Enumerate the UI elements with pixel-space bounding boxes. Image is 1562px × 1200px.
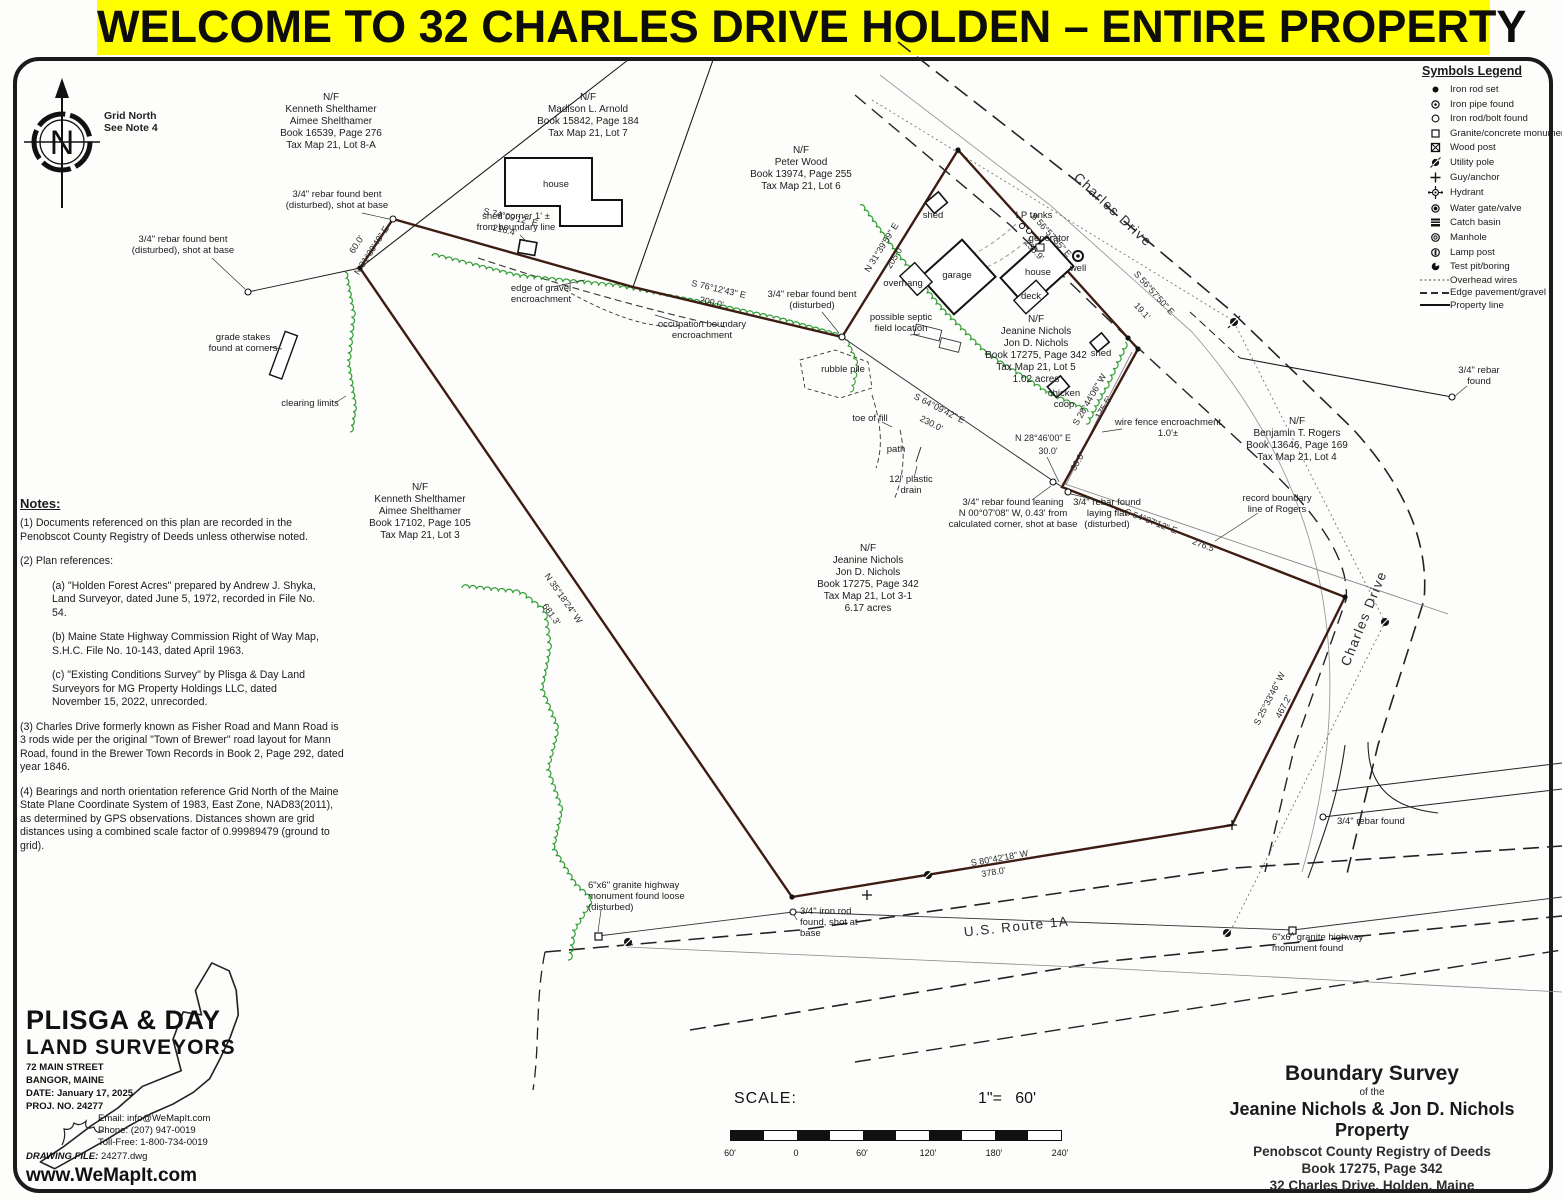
svg-text:S 76°12'43" E: S 76°12'43" E <box>690 278 746 300</box>
svg-text:Book 15842, Page 184: Book 15842, Page 184 <box>537 116 639 127</box>
svg-text:3/4" rebar found bent: 3/4" rebar found bent <box>768 289 857 300</box>
svg-text:base: base <box>800 928 821 939</box>
svg-text:monument found: monument found <box>1272 943 1343 954</box>
division-line-lot7 <box>633 60 713 287</box>
svg-text:Aimee Shelthamer: Aimee Shelthamer <box>290 116 373 127</box>
svg-text:drain: drain <box>900 485 921 496</box>
svg-text:Book 17275, Page 342: Book 17275, Page 342 <box>817 579 919 590</box>
svg-text:field location: field location <box>875 323 928 334</box>
svg-text:60.0': 60.0' <box>347 233 366 255</box>
svg-text:19.1': 19.1' <box>1132 300 1152 321</box>
survey-map: N/FKenneth ShelthamerAimee ShelthamerBoo… <box>0 0 1562 1200</box>
svg-text:12" plastic: 12" plastic <box>889 474 933 485</box>
svg-text:Kenneth Shelthamer: Kenneth Shelthamer <box>285 104 377 115</box>
svg-text:(disturbed): (disturbed) <box>588 902 633 913</box>
svg-text:3/4" rebar: 3/4" rebar <box>1458 365 1499 376</box>
svg-text:N 00°07'08" W, 0.43' from: N 00°07'08" W, 0.43' from <box>959 508 1068 519</box>
svg-text:3/4" rebar found bent: 3/4" rebar found bent <box>293 189 382 200</box>
route1a-record-line <box>627 947 1562 992</box>
charles-drive-east-edge <box>898 42 1425 878</box>
svg-text:(disturbed), shot at base: (disturbed), shot at base <box>132 245 234 256</box>
svg-text:30.0': 30.0' <box>1068 450 1086 472</box>
charles-drive-label: Charles Drive <box>1338 569 1390 669</box>
svg-text:Tax Map 21, Lot 3: Tax Map 21, Lot 3 <box>380 530 460 541</box>
svg-text:rubble pile: rubble pile <box>821 364 865 375</box>
svg-text:house: house <box>1025 267 1051 278</box>
svg-text:found, shot at: found, shot at <box>800 917 858 928</box>
svg-text:Kenneth Shelthamer: Kenneth Shelthamer <box>374 494 466 505</box>
svg-text:3/4" rebar found: 3/4" rebar found <box>1337 816 1405 827</box>
svg-text:Book 16539, Page 276: Book 16539, Page 276 <box>280 128 382 139</box>
svg-text:found: found <box>1467 376 1491 387</box>
svg-text:occupation boundary: occupation boundary <box>658 319 746 330</box>
svg-text:230.0': 230.0' <box>918 413 944 433</box>
svg-text:Book 13646, Page 169: Book 13646, Page 169 <box>1246 440 1348 451</box>
svg-text:Tax Map 21, Lot 8-A: Tax Map 21, Lot 8-A <box>286 140 376 151</box>
svg-text:Madison L. Arnold: Madison L. Arnold <box>548 104 628 115</box>
svg-text:N/F: N/F <box>323 92 339 103</box>
svg-text:house: house <box>543 179 569 190</box>
property-boundary <box>360 150 1345 897</box>
well-symbol-center <box>1076 254 1080 258</box>
corner-markers <box>245 147 1455 940</box>
svg-text:record boundary: record boundary <box>1242 493 1311 504</box>
svg-text:276.5': 276.5' <box>1191 536 1217 554</box>
svg-text:found at corners: found at corners <box>209 343 278 354</box>
svg-text:encroachment: encroachment <box>672 330 733 341</box>
svg-text:grade stakes: grade stakes <box>216 332 271 343</box>
route1a-far-edge <box>855 950 1562 1062</box>
svg-text:Tax Map 21, Lot 7: Tax Map 21, Lot 7 <box>548 128 628 139</box>
svg-text:6"x6" granite highway: 6"x6" granite highway <box>588 880 679 891</box>
svg-text:378.0': 378.0' <box>981 865 1007 879</box>
svg-text:N/F: N/F <box>412 482 428 493</box>
toe-of-fill-line <box>872 395 880 468</box>
svg-text:3/4" iron rod: 3/4" iron rod <box>800 906 851 917</box>
intersection-flare <box>1368 742 1438 813</box>
svg-text:encroachment: encroachment <box>511 294 572 305</box>
charles-drive-label: Charles Drive <box>1071 170 1155 250</box>
svg-text:Tax Map 21, Lot 3-1: Tax Map 21, Lot 3-1 <box>824 591 913 602</box>
svg-text:path: path <box>887 444 906 455</box>
svg-text:Book 17275, Page 342: Book 17275, Page 342 <box>985 350 1087 361</box>
svg-text:3/4" rebar found: 3/4" rebar found <box>1073 497 1141 508</box>
svg-text:line of Rogers: line of Rogers <box>1248 504 1307 515</box>
clearing-limits-line <box>345 272 356 432</box>
svg-text:well: well <box>1069 263 1086 274</box>
survey-sheet-page: WELCOME TO 32 CHARLES DRIVE HOLDEN – ENT… <box>0 0 1562 1200</box>
svg-text:1.02 acres: 1.02 acres <box>1013 374 1060 385</box>
svg-text:Book 13974, Page 255: Book 13974, Page 255 <box>750 169 852 180</box>
svg-text:(disturbed), shot at base: (disturbed), shot at base <box>286 200 388 211</box>
plastic-drain-line <box>916 447 921 462</box>
svg-text:6"x6" granite highway: 6"x6" granite highway <box>1272 932 1363 943</box>
boundary-shed <box>518 240 537 256</box>
svg-text:30.0': 30.0' <box>1038 446 1058 456</box>
svg-text:overhang: overhang <box>883 278 923 289</box>
svg-text:toe of fill: toe of fill <box>852 413 887 424</box>
svg-text:edge of gravel: edge of gravel <box>511 283 571 294</box>
svg-text:N 28°46'00" E: N 28°46'00" E <box>1015 433 1071 443</box>
svg-text:coop: coop <box>1054 399 1075 410</box>
svg-text:laying flat: laying flat <box>1087 508 1127 519</box>
route1a-label: U.S. Route 1A <box>963 914 1070 940</box>
side-line-1 <box>1323 789 1562 817</box>
svg-text:200.0': 200.0' <box>699 294 725 309</box>
svg-text:Tax Map 21, Lot 4: Tax Map 21, Lot 4 <box>1257 452 1337 463</box>
svg-text:S 64°07'12" E: S 64°07'12" E <box>1123 507 1178 536</box>
svg-text:garage: garage <box>942 270 972 281</box>
svg-text:shed: shed <box>923 210 944 221</box>
svg-text:Tax Map 21, Lot 6: Tax Map 21, Lot 6 <box>761 181 841 192</box>
svg-text:Tax Map 21, Lot 5: Tax Map 21, Lot 5 <box>996 362 1076 373</box>
rogers-east-line <box>1240 358 1452 397</box>
svg-text:Jon D. Nichols: Jon D. Nichols <box>1004 338 1068 349</box>
svg-text:3/4" rebar found bent: 3/4" rebar found bent <box>139 234 228 245</box>
svg-text:N/F: N/F <box>1028 314 1044 325</box>
route1a-north-edge <box>545 846 1562 952</box>
svg-text:N/F: N/F <box>580 92 596 103</box>
svg-text:N/F: N/F <box>1289 416 1305 427</box>
svg-text:N/F: N/F <box>860 543 876 554</box>
svg-text:clearing limits: clearing limits <box>281 398 339 409</box>
svg-text:1.0'±: 1.0'± <box>1158 428 1178 439</box>
svg-text:205.0': 205.0' <box>884 244 905 270</box>
svg-text:(disturbed): (disturbed) <box>1084 519 1129 530</box>
annotation-labels: 3/4" rebar found bent(disturbed), shot a… <box>132 179 1500 954</box>
svg-text:chicken: chicken <box>1048 388 1080 399</box>
svg-text:Aimee Shelthamer: Aimee Shelthamer <box>379 506 462 517</box>
svg-text:3/4" rebar found leaning: 3/4" rebar found leaning <box>962 497 1063 508</box>
septic-area <box>939 338 961 353</box>
lp-tank <box>1020 224 1025 229</box>
svg-text:deck: deck <box>1021 291 1041 302</box>
svg-text:Jeanine Nichols: Jeanine Nichols <box>833 555 904 566</box>
svg-text:681.3': 681.3' <box>540 601 562 627</box>
svg-text:N/F: N/F <box>793 145 809 156</box>
road-flare-west <box>533 952 545 1090</box>
svg-text:6.17 acres: 6.17 acres <box>845 603 892 614</box>
svg-text:Jeanine Nichols: Jeanine Nichols <box>1001 326 1072 337</box>
svg-text:shed: shed <box>1091 348 1112 359</box>
svg-text:possible septic: possible septic <box>870 312 933 323</box>
svg-text:calculated corner, shot at bas: calculated corner, shot at base <box>949 519 1078 530</box>
tie-line-west <box>248 268 360 292</box>
side-line-2 <box>1332 763 1562 791</box>
svg-text:(disturbed): (disturbed) <box>789 300 834 311</box>
grade-stakes <box>269 331 297 379</box>
svg-text:Peter Wood: Peter Wood <box>775 157 828 168</box>
route1a-south-edge <box>690 916 1562 1030</box>
svg-text:monument found loose: monument found loose <box>588 891 685 902</box>
svg-text:Book 17102, Page 105: Book 17102, Page 105 <box>369 518 471 529</box>
svg-text:Jon D. Nichols: Jon D. Nichols <box>836 567 900 578</box>
tree-line <box>462 585 591 900</box>
svg-text:Benjamin T. Rogers: Benjamin T. Rogers <box>1253 428 1340 439</box>
svg-text:wire fence encroachment: wire fence encroachment <box>1114 417 1221 428</box>
